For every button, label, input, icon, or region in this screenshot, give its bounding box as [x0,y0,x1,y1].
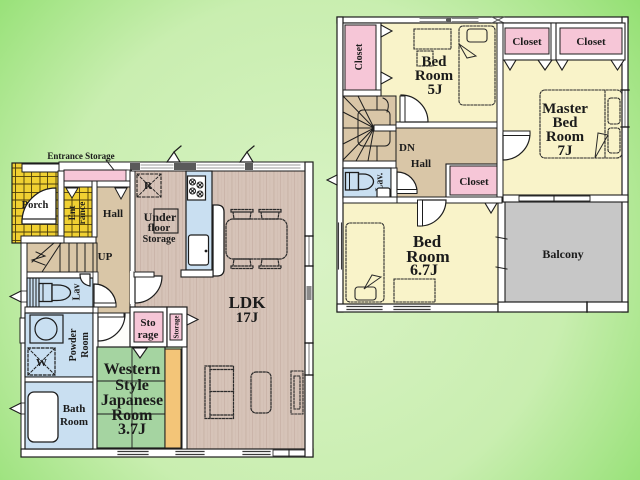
svg-text:Ent: Ent [68,205,78,221]
svg-text:Hall: Hall [103,208,123,220]
svg-text:Storage: Storage [173,316,181,339]
svg-text:6.7J: 6.7J [410,262,438,279]
svg-text:Western: Western [104,361,161,378]
svg-text:Bath: Bath [63,403,86,415]
svg-text:Closet: Closet [354,43,365,70]
svg-text:Room: Room [60,416,88,428]
svg-text:Closet: Closet [512,36,542,48]
svg-text:Closet: Closet [576,36,606,48]
svg-text:DN: DN [399,142,415,154]
svg-text:17J: 17J [236,310,259,326]
svg-text:Balcony: Balcony [542,247,583,261]
svg-text:Lav: Lav [72,284,83,301]
svg-text:Hall: Hall [411,158,431,170]
svg-text:Storage: Storage [143,234,176,245]
svg-text:7J: 7J [558,143,574,159]
svg-text:Powder: Powder [68,328,79,361]
svg-text:R: R [144,180,153,192]
svg-text:Entrance Storage: Entrance Storage [47,151,114,161]
svg-text:UP: UP [98,251,113,263]
svg-text:Room: Room [80,332,91,358]
svg-text:3.7J: 3.7J [118,421,146,438]
svg-text:Closet: Closet [459,176,489,188]
svg-text:Porch: Porch [22,200,49,211]
svg-text:5J: 5J [428,82,444,98]
svg-text:Sto: Sto [140,317,156,329]
svg-text:rage: rage [138,329,159,341]
svg-text:rance: rance [78,202,88,225]
svg-text:W: W [36,357,47,369]
svg-text:floor: floor [148,222,171,234]
